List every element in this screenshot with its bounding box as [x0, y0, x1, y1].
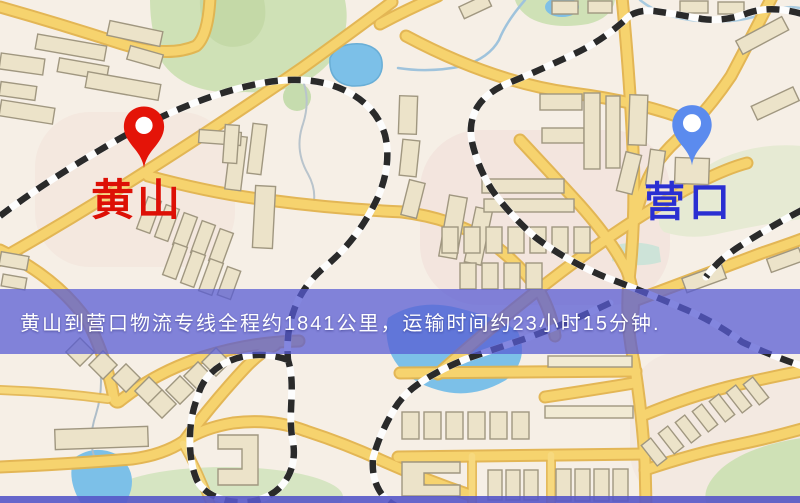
map-canvas	[0, 0, 800, 503]
location-pin-icon	[121, 105, 167, 170]
location-pin-icon	[669, 104, 715, 167]
route-info-banner: 黄山到营口物流专线全程约1841公里，运输时间约23小时15分钟.	[0, 289, 800, 354]
bottom-banner-strip	[0, 496, 800, 503]
origin-pin	[121, 105, 167, 170]
destination-label: 营口	[644, 182, 734, 223]
map-container: 黄山 营口 黄山到营口物流专线全程约1841公里，运输时间约23小时15分钟.	[0, 0, 800, 503]
route-info-text: 黄山到营口物流专线全程约1841公里，运输时间约23小时15分钟.	[20, 307, 661, 336]
origin-label: 黄山	[91, 180, 183, 223]
origin-pin-shape	[124, 106, 164, 168]
destination-pin	[669, 104, 715, 167]
